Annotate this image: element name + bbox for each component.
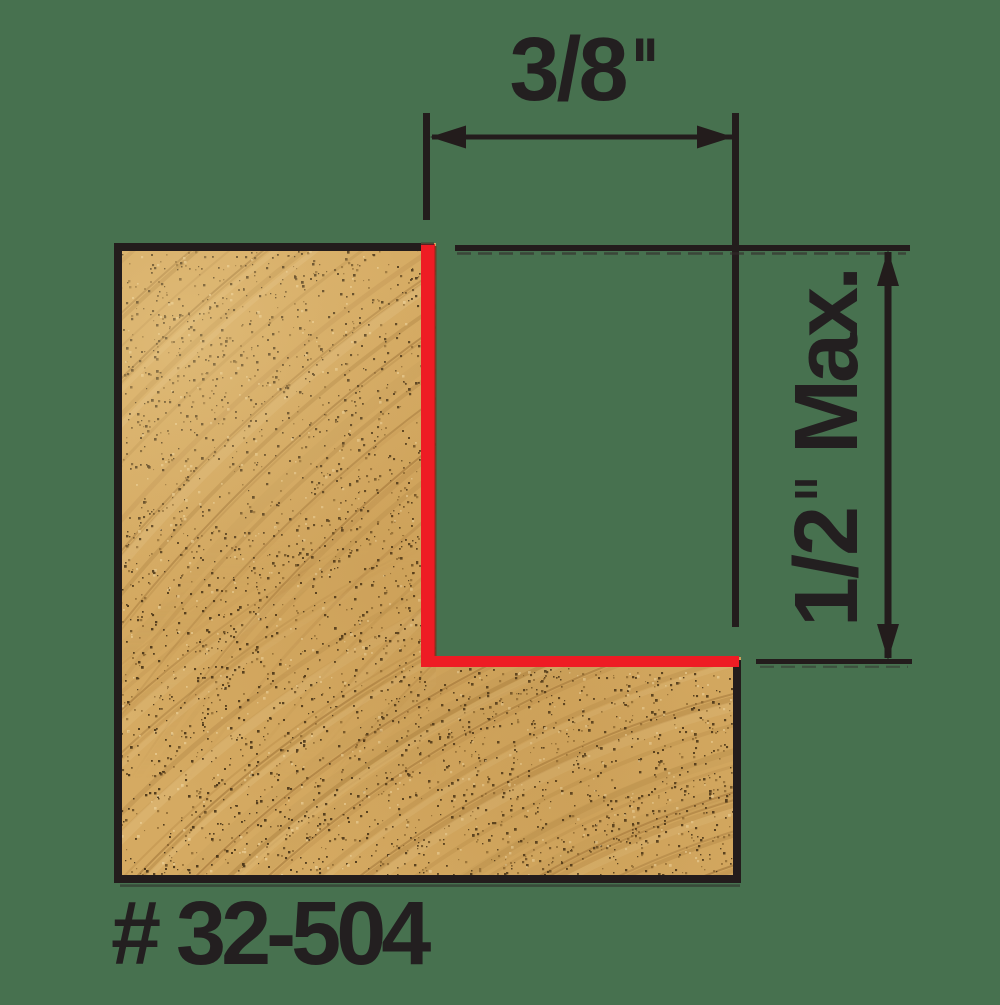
svg-text:3/8: 3/8 (510, 20, 627, 120)
svg-text:# 32-504: # 32-504 (111, 884, 431, 984)
svg-text:Max.: Max. (777, 270, 877, 454)
svg-text:1/2: 1/2 (777, 508, 877, 627)
